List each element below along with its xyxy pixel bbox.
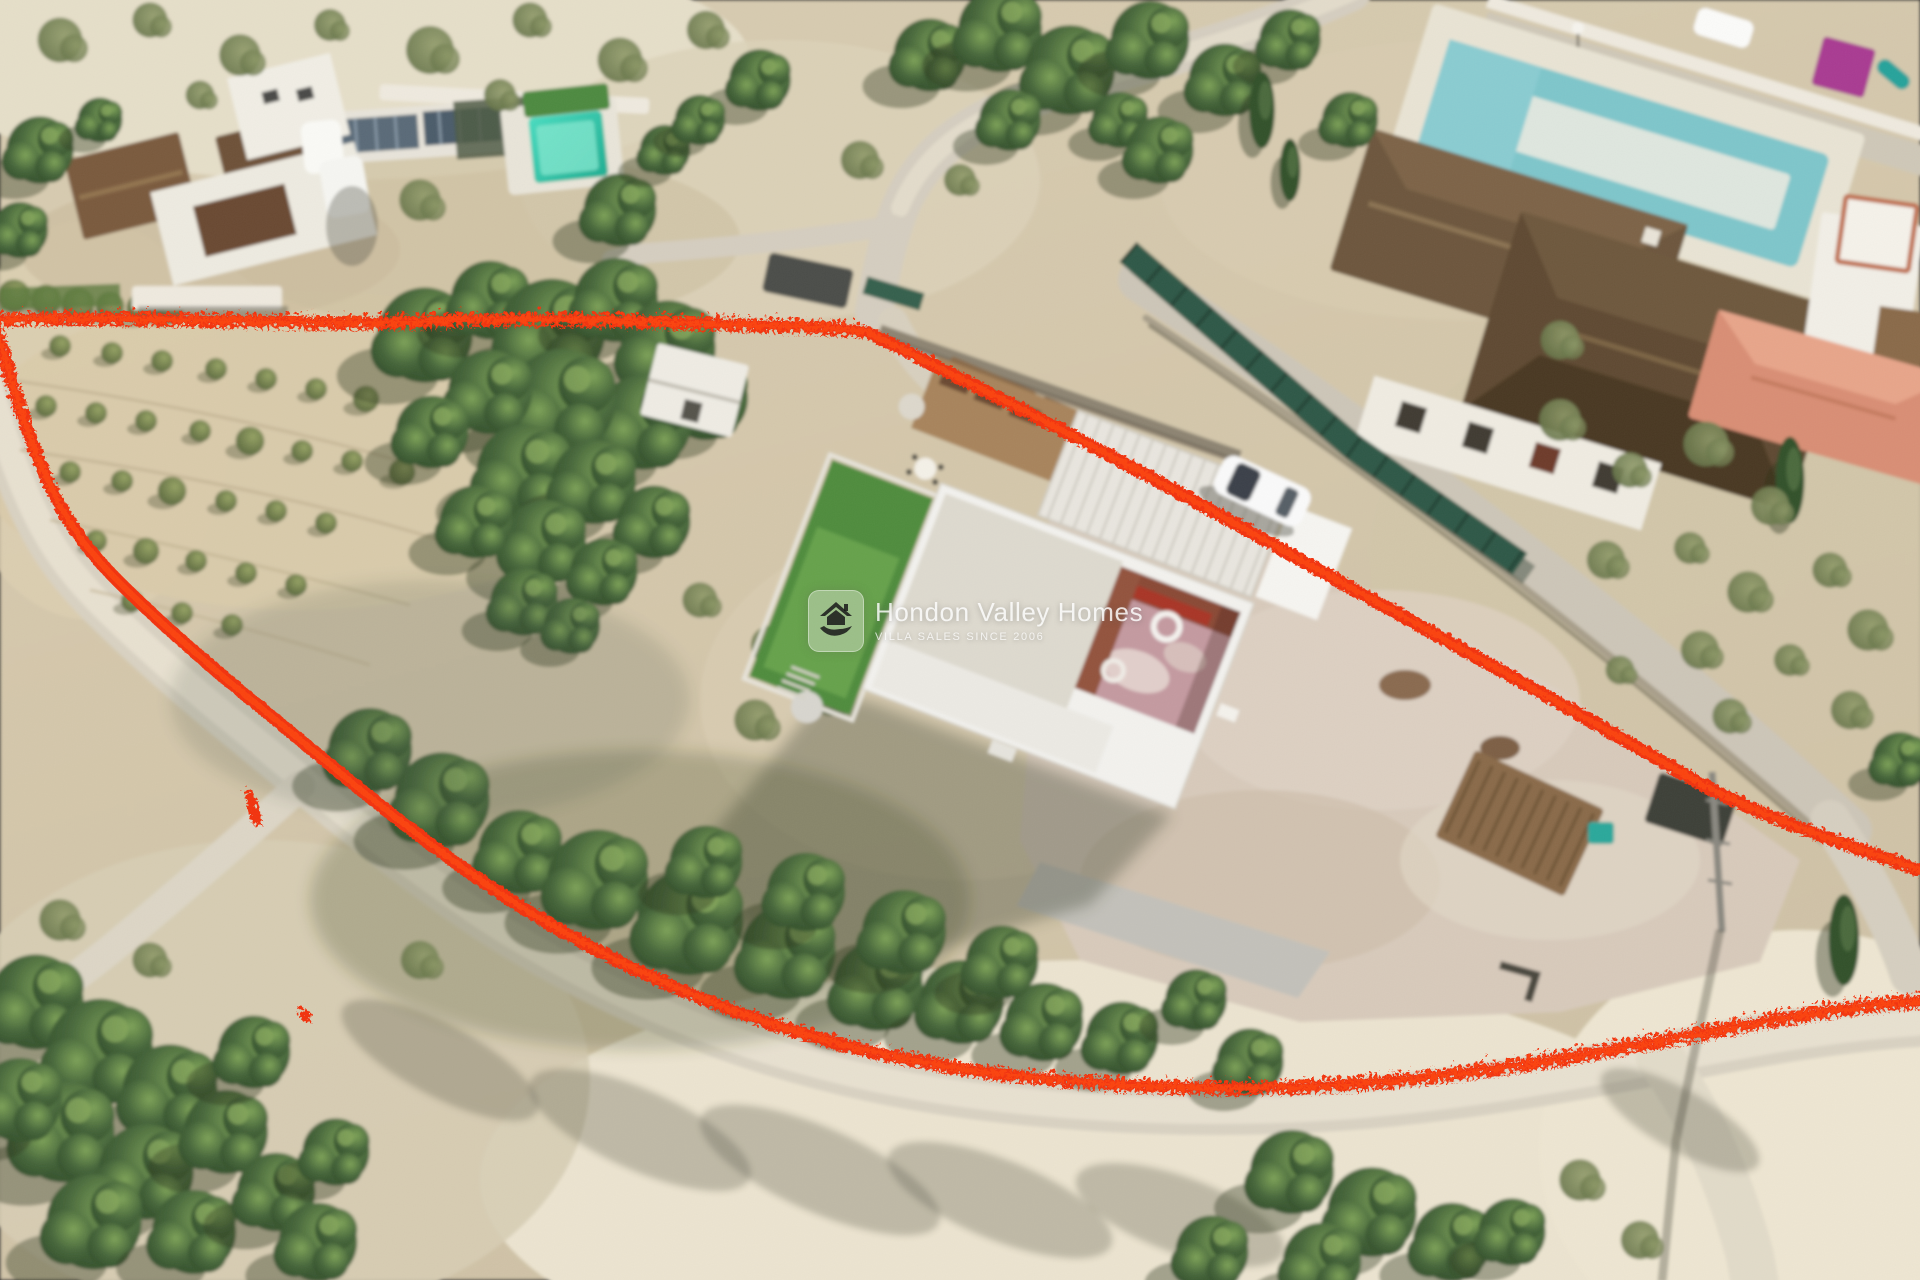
aerial-photo-canvas xyxy=(0,0,1920,1280)
photo-grain xyxy=(0,0,1920,1280)
aerial-photo: Hondon Valley Homes VILLA SALES SINCE 20… xyxy=(0,0,1920,1280)
